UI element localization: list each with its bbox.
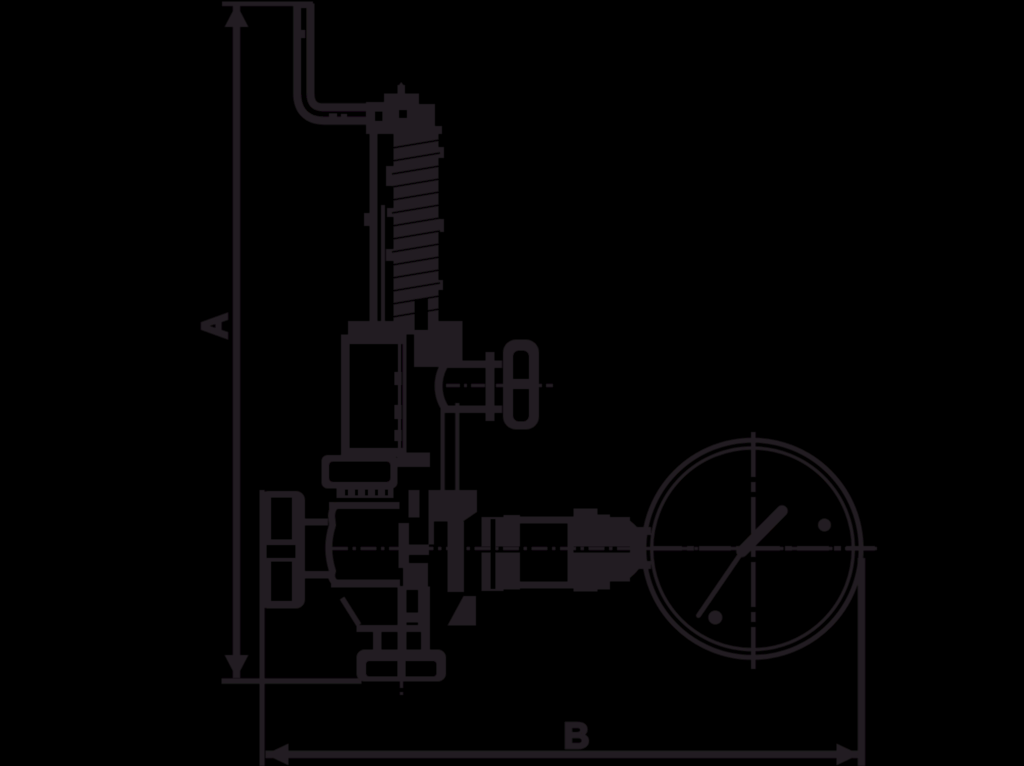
svg-text:A: A <box>194 313 235 339</box>
svg-text:B: B <box>564 715 590 756</box>
